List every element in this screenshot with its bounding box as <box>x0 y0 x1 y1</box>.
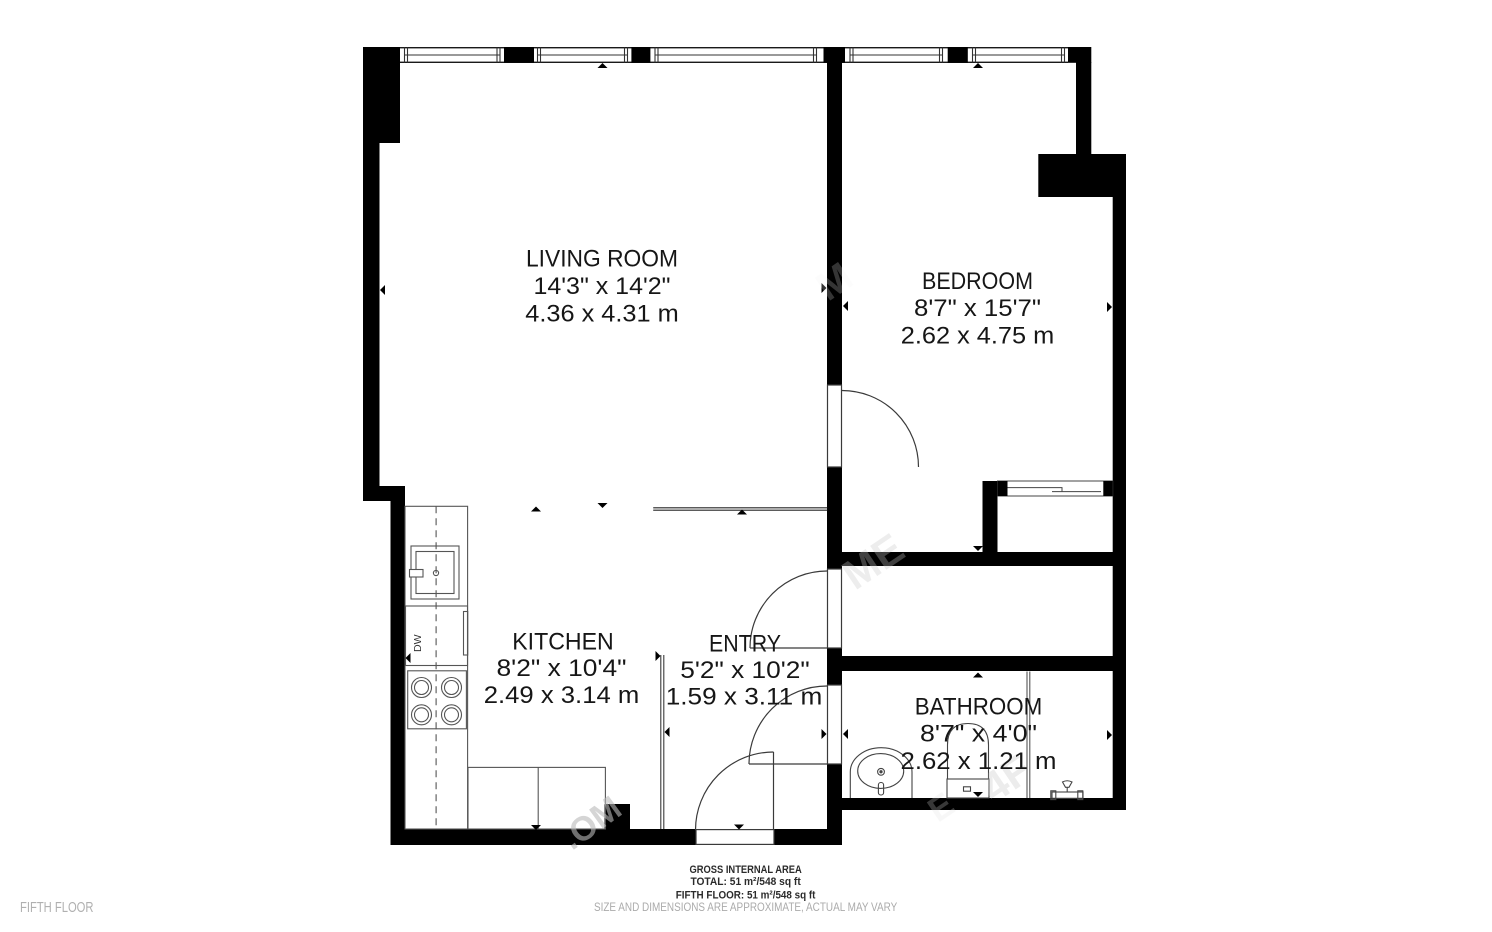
svg-text:BATHROOM: BATHROOM <box>915 693 1043 720</box>
svg-text:LIVING ROOM: LIVING ROOM <box>526 245 678 272</box>
svg-text:KITCHEN: KITCHEN <box>512 629 614 656</box>
svg-text:14'3" x 14'2": 14'3" x 14'2" <box>534 273 671 300</box>
svg-text:2.62 x 4.75 m: 2.62 x 4.75 m <box>901 323 1055 350</box>
svg-text:5'2" x 10'2": 5'2" x 10'2" <box>680 657 810 684</box>
svg-text:ENTRY: ENTRY <box>709 631 781 658</box>
svg-text:GROSS INTERNAL AREA: GROSS INTERNAL AREA <box>689 864 801 876</box>
svg-text:SIZE AND DIMENSIONS ARE APPROX: SIZE AND DIMENSIONS ARE APPROXIMATE, ACT… <box>594 902 898 914</box>
svg-text:1.59 x 3.11 m: 1.59 x 3.11 m <box>666 683 823 710</box>
svg-text:FIFTH FLOOR: 51 m²/548 sq ft: FIFTH FLOOR: 51 m²/548 sq ft <box>676 890 816 902</box>
svg-text:8'2" x 10'4": 8'2" x 10'4" <box>497 655 627 682</box>
svg-text:4.36 x 4.31 m: 4.36 x 4.31 m <box>525 300 679 327</box>
svg-text:8'7" x 15'7": 8'7" x 15'7" <box>914 295 1041 322</box>
svg-text:2.49 x 3.14 m: 2.49 x 3.14 m <box>484 682 640 709</box>
svg-text:TOTAL: 51 m²/548 sq ft: TOTAL: 51 m²/548 sq ft <box>690 876 801 888</box>
svg-text:8'7" x 4'0": 8'7" x 4'0" <box>920 721 1037 748</box>
svg-text:FIFTH FLOOR: FIFTH FLOOR <box>20 899 94 916</box>
svg-text:2.62 x 1.21 m: 2.62 x 1.21 m <box>901 748 1057 775</box>
svg-text:DW: DW <box>412 634 424 652</box>
svg-text:BEDROOM: BEDROOM <box>922 268 1033 295</box>
